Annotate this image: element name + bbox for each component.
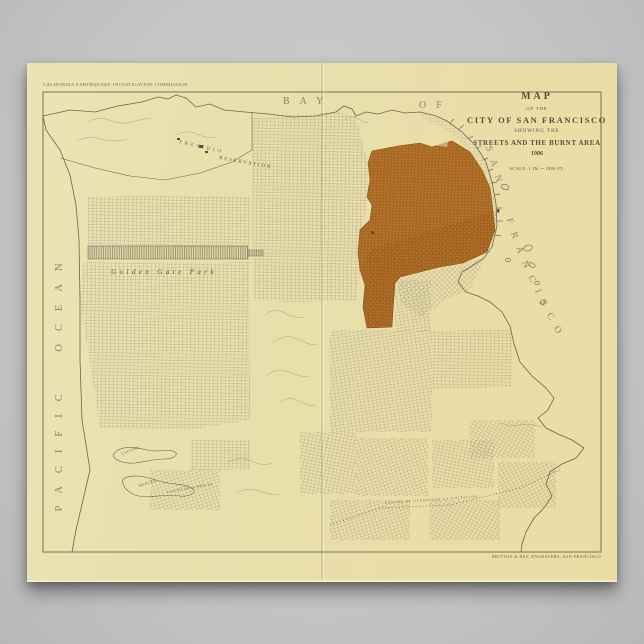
golden-gate-park-label: Golden Gate Park: [111, 268, 217, 276]
map-title-block: MAP OF THE CITY OF SAN FRANCISCO SHOWING…: [462, 90, 612, 172]
telegraph-hill-notch: [429, 133, 449, 147]
street-grid-patch: [252, 112, 368, 302]
svg-text:SAN FRANCISCO: SAN FRANCISCO: [483, 145, 567, 344]
street-grid-patch: [190, 440, 250, 470]
street-grid-patch: [330, 500, 410, 540]
island: [505, 258, 510, 262]
street-grid-patch: [498, 462, 556, 508]
title-scale: SCALE: 1 IN. = 1800 FT.: [462, 166, 612, 172]
pacific-shoreline: [43, 116, 90, 552]
title-showing: SHOWING THE: [462, 129, 612, 136]
map-poster: CANADA DE GUADALUPE LA VISITACION BAY OF…: [27, 63, 617, 582]
of-label: OF: [419, 100, 452, 111]
street-grid-patch: [356, 438, 428, 496]
title-map: MAP: [462, 90, 612, 104]
bay-label: BAY: [283, 96, 333, 107]
golden-gate-park: [88, 246, 263, 259]
title-year: 1906: [462, 150, 612, 158]
title-streets-burnt-area: STREETS AND THE BURNT AREA: [462, 139, 612, 148]
street-grid-patch: [80, 262, 250, 430]
pacific-ocean-label: PACIFIC OCEAN: [54, 250, 65, 511]
presidio-boundary: [60, 112, 252, 180]
street-grid-patch: [330, 330, 432, 432]
title-city: CITY OF SAN FRANCISCO: [462, 115, 612, 126]
street-grid-patch: [88, 196, 250, 246]
laguna-label: LAGUNA: [121, 445, 140, 456]
paper-fold-crease: [322, 63, 324, 580]
series-caption: CALIFORNIA EARTHQUAKE INVESTIGATION COMM…: [43, 82, 188, 87]
engraver-imprint: BRITTON & REY, ENGRAVERS, SAN FRANCISCO: [407, 554, 601, 559]
street-grid-patch: [432, 440, 494, 488]
street-grid-patch: [432, 330, 512, 388]
product-background: CANADA DE GUADALUPE LA VISITACION BAY OF…: [0, 0, 644, 644]
street-grid-patch: [430, 500, 500, 540]
street-grid-patch: [300, 432, 356, 494]
title-of-the: OF THE: [462, 106, 612, 112]
presidio-label: PRESIDIO: [179, 140, 225, 155]
san-francisco-bay-label: SAN FRANCISCO: [483, 145, 567, 344]
